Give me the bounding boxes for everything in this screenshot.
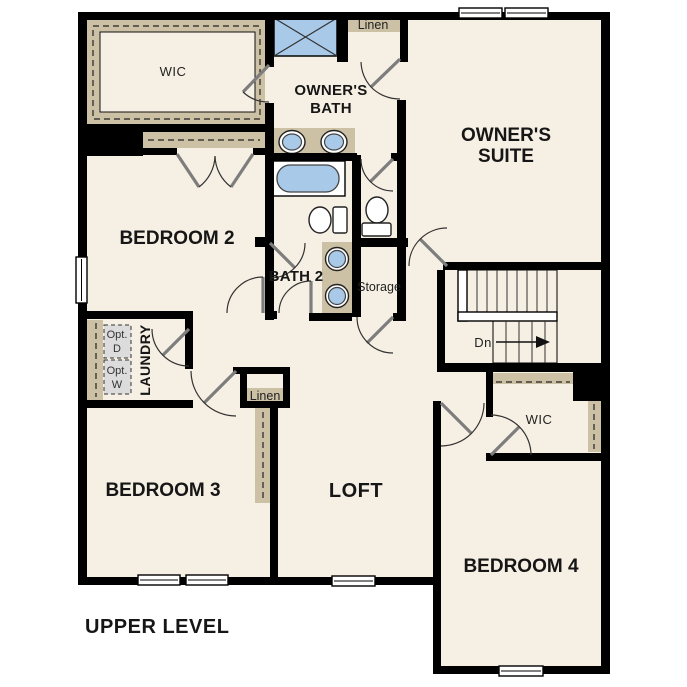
wall-stair-bottom	[437, 363, 577, 372]
laundry-closet-shelf	[87, 320, 103, 400]
wall-laundry-bottom	[78, 400, 193, 408]
stairs-down-label: Dn	[474, 335, 492, 350]
toilet-fixture-bath2	[309, 207, 347, 233]
bath2-label: BATH 2	[269, 268, 324, 285]
wall-shower-linen-divider	[337, 12, 348, 62]
loft-label: LOFT	[329, 480, 383, 502]
bedroom4-wic-label: WIC	[526, 412, 553, 427]
wall-bath2-vanity-bottom	[309, 313, 352, 321]
wall-bed4-left	[433, 401, 441, 674]
hall-linen-label: Linen	[250, 389, 281, 403]
opt-dryer-label-line2: D	[113, 343, 121, 355]
linen-top-label: Linen	[358, 18, 389, 32]
owner-wic-label: WIC	[160, 64, 187, 79]
window-bedroom3-bottom-2	[186, 575, 228, 585]
owners-suite-label-line1: OWNER'S	[461, 125, 551, 146]
wall-bed4-wic-bottom	[486, 453, 610, 461]
bath2-sink-bottom	[326, 285, 349, 308]
window-loft-bottom	[332, 576, 375, 586]
wall-suite-bottom	[443, 262, 610, 270]
laundry-label: LAUNDRY	[137, 324, 153, 396]
bedroom3-label: BEDROOM 3	[105, 480, 220, 501]
wall-toilet-compartment-divider	[352, 155, 361, 238]
opt-dryer-label-line1: Opt.	[107, 329, 128, 341]
wall-bath2-nook-stub	[255, 237, 270, 247]
bedroom2-label: BEDROOM 2	[119, 228, 234, 249]
wall-stairwell-left	[437, 270, 445, 371]
wall-bed2-closet-right-stub	[253, 148, 265, 155]
window-bedroom4-bottom	[499, 666, 543, 676]
wall-laundry-right	[185, 319, 193, 369]
opt-washer-label-line2: W	[112, 379, 123, 391]
wall-bed3-closet-right	[270, 407, 278, 503]
bathtub-fixture	[271, 161, 345, 196]
wall-owner-vanity-bottom	[265, 153, 357, 161]
window-bedroom3-bottom-1	[138, 575, 180, 585]
wall-bath-suite-divider	[397, 100, 406, 238]
owners-bath-label-line1: OWNER'S	[294, 82, 367, 99]
window-bedroom2-left	[76, 257, 87, 303]
wall-bath2-door-stub	[265, 311, 277, 319]
wall-bed4-wic-left	[486, 363, 493, 417]
level-title: UPPER LEVEL	[85, 616, 229, 638]
window-suite-top-2	[505, 8, 548, 18]
wall-storage-door-stub	[393, 313, 406, 321]
wall-bed2-bottom	[78, 311, 193, 319]
owners-bath-label-line2: BATH	[310, 100, 352, 117]
stair-railing-horizontal	[458, 312, 557, 321]
storage-label: Storage	[357, 280, 401, 294]
owners-suite-label-line2: SUITE	[478, 146, 534, 167]
wall-wic-bed2-right	[265, 103, 274, 320]
owner-vanity-sink-left	[279, 131, 305, 154]
bedroom4-label: BEDROOM 4	[463, 556, 579, 577]
wall-outer-bottom-left	[78, 577, 438, 585]
opt-washer-label-line1: Opt.	[107, 365, 128, 377]
window-suite-top-1	[459, 8, 502, 18]
wall-bed3-loft-divider	[270, 503, 278, 581]
owner-vanity-sink-right	[321, 131, 347, 154]
bedroom2-closet-shelf	[143, 130, 265, 148]
wall-chase-block	[83, 128, 143, 156]
wall-corner-block	[573, 363, 601, 401]
wall-bed2-closet-left-stub	[143, 148, 177, 155]
wall-linen-top-right	[400, 12, 408, 62]
shower-fixture	[274, 18, 337, 56]
wall-wic-right-upper	[265, 12, 274, 67]
wall-outer-right	[601, 12, 610, 674]
floor-plan-canvas: WIC Linen OWNER'S BATH OWNER'S SUITE BED…	[0, 0, 687, 687]
bath2-sink-top	[326, 248, 349, 271]
floor-plan-drawing: WIC Linen OWNER'S BATH OWNER'S SUITE BED…	[0, 0, 687, 687]
